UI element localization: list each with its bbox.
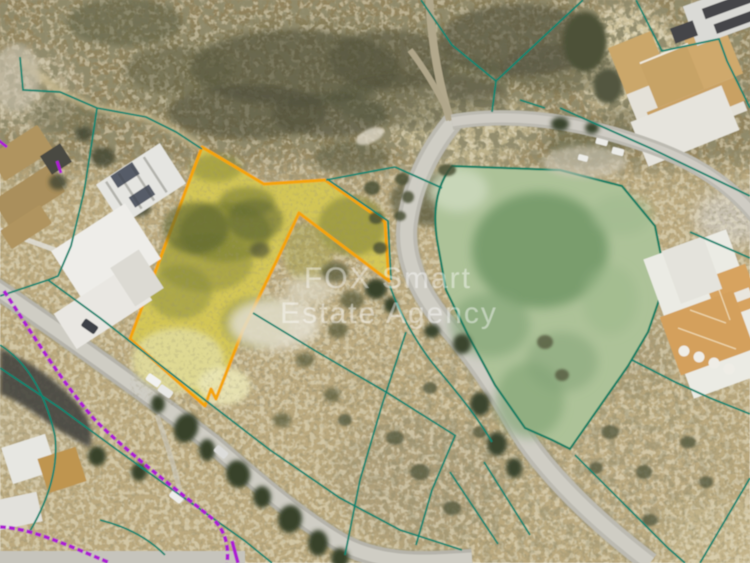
svg-text:FOX Smart: FOX Smart <box>304 262 472 295</box>
svg-text:Estate Agency: Estate Agency <box>280 297 498 330</box>
